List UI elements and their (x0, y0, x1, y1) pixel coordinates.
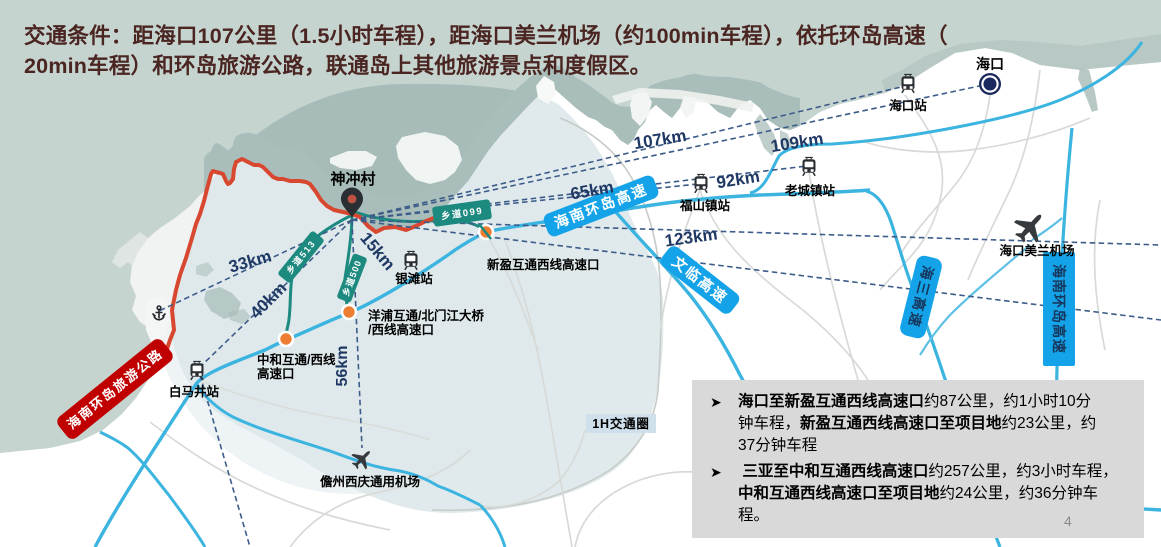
svg-text:儋州西庆通用机场: 儋州西庆通用机场 (320, 474, 420, 489)
svg-text:老城镇站: 老城镇站 (784, 183, 836, 198)
svg-text:中和互通/西线: 中和互通/西线 (257, 352, 336, 367)
svg-text:海南环岛高速: 海南环岛高速 (1051, 264, 1067, 354)
svg-text:56km: 56km (334, 346, 351, 387)
svg-text:洋浦互通/北门江大桥: 洋浦互通/北门江大桥 (368, 308, 484, 323)
svg-text:银滩站: 银滩站 (395, 271, 433, 286)
svg-text:新盈互通西线高速口: 新盈互通西线高速口 (487, 257, 600, 272)
svg-text:福山镇站: 福山镇站 (679, 198, 731, 213)
svg-text:神冲村: 神冲村 (330, 170, 375, 188)
svg-text:白马井站: 白马井站 (169, 384, 220, 399)
svg-text:海口美兰机场: 海口美兰机场 (999, 243, 1074, 258)
svg-text:海口站: 海口站 (889, 98, 927, 113)
svg-text:/西线高速口: /西线高速口 (368, 322, 434, 337)
svg-text:1H交通圈: 1H交通圈 (592, 416, 649, 431)
svg-text:高速口: 高速口 (257, 366, 295, 381)
